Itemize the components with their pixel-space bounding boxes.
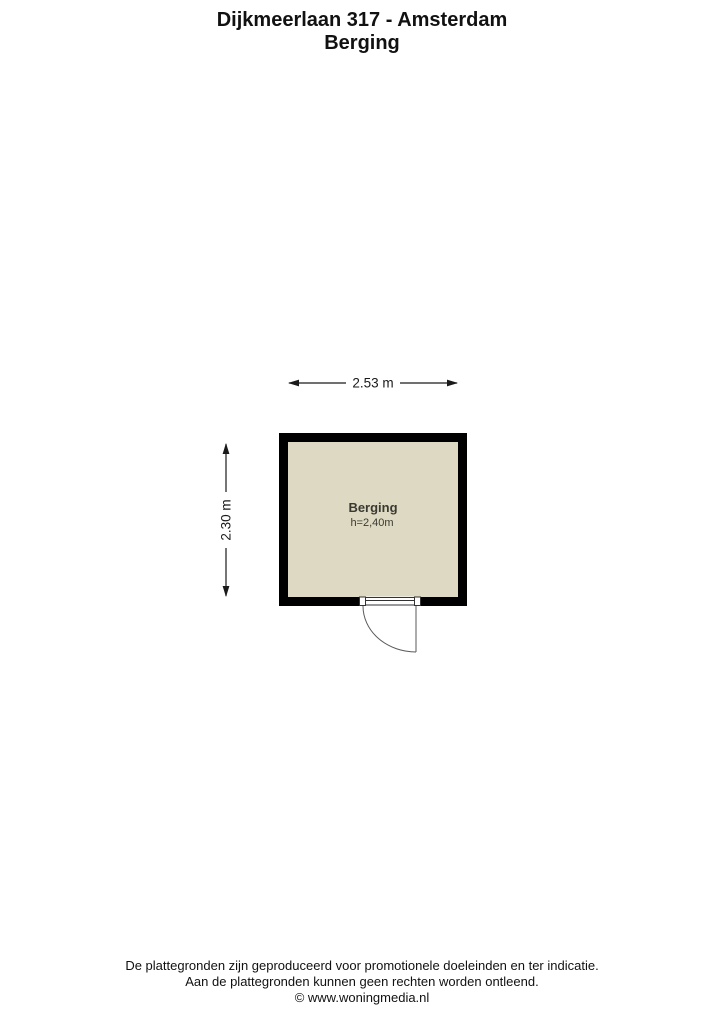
floorplan-page: Dijkmeerlaan 317 - Amsterdam Berging 2.5…	[0, 0, 724, 1024]
copyright-line: © www.woningmedia.nl	[0, 990, 724, 1006]
arrowhead-down-icon	[223, 586, 230, 597]
arrowhead-left-icon	[288, 380, 299, 387]
door-jamb-right	[415, 597, 421, 606]
door-swing-arc	[363, 606, 416, 652]
dimension-width-label: 2.53 m	[352, 376, 393, 391]
arrowhead-right-icon	[447, 380, 458, 387]
disclaimer: De plattegronden zijn geproduceerd voor …	[0, 958, 724, 1006]
door-jamb-left	[360, 597, 366, 606]
door	[363, 606, 416, 652]
dimension-height-label: 2.30 m	[219, 499, 234, 540]
floor-plan-drawing: 2.53 m 2.30 m Berging h=2,40m	[0, 0, 724, 1024]
disclaimer-line-2: Aan de plattegronden kunnen geen rechten…	[0, 974, 724, 990]
room-ceiling-height-label: h=2,40m	[350, 517, 393, 529]
door-threshold-frame	[366, 598, 415, 606]
door-threshold	[360, 597, 421, 606]
dimension-width: 2.53 m	[288, 376, 458, 391]
dimension-height: 2.30 m	[219, 443, 234, 597]
disclaimer-line-1: De plattegronden zijn geproduceerd voor …	[0, 958, 724, 974]
arrowhead-up-icon	[223, 443, 230, 454]
room-name-label: Berging	[348, 500, 397, 515]
